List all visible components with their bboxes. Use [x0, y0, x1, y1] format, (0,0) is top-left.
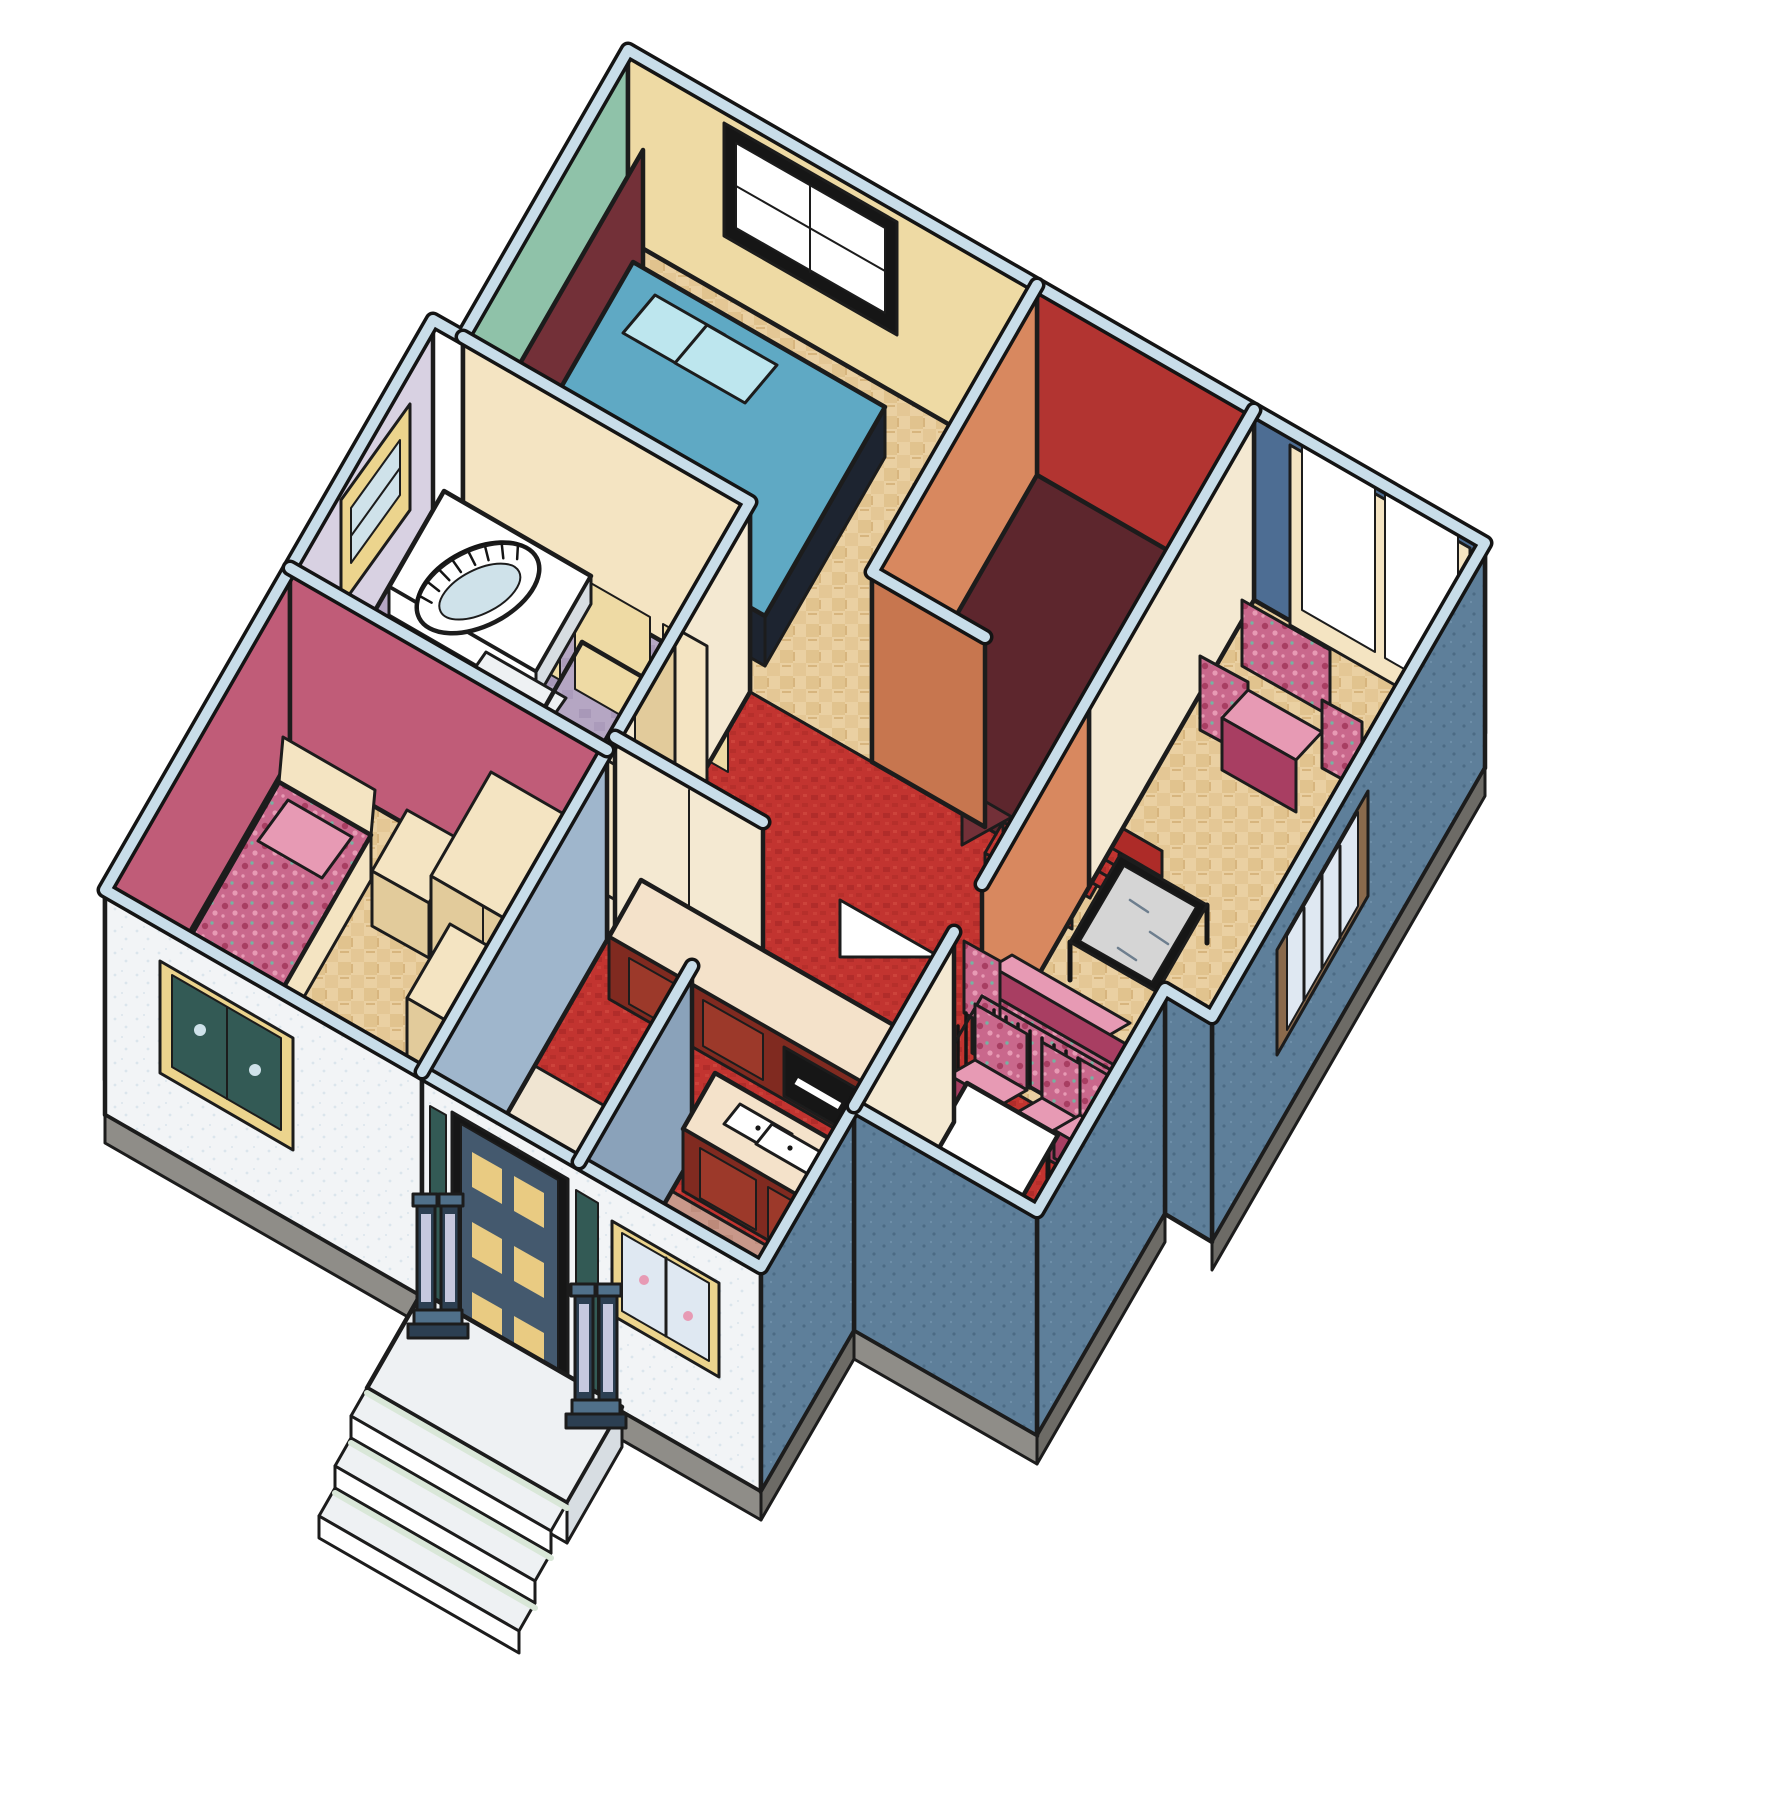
dining-jog-exterior [1165, 989, 1212, 1242]
house-cutaway-illustration [0, 0, 1786, 1800]
illustration-canvas [0, 0, 1786, 1800]
